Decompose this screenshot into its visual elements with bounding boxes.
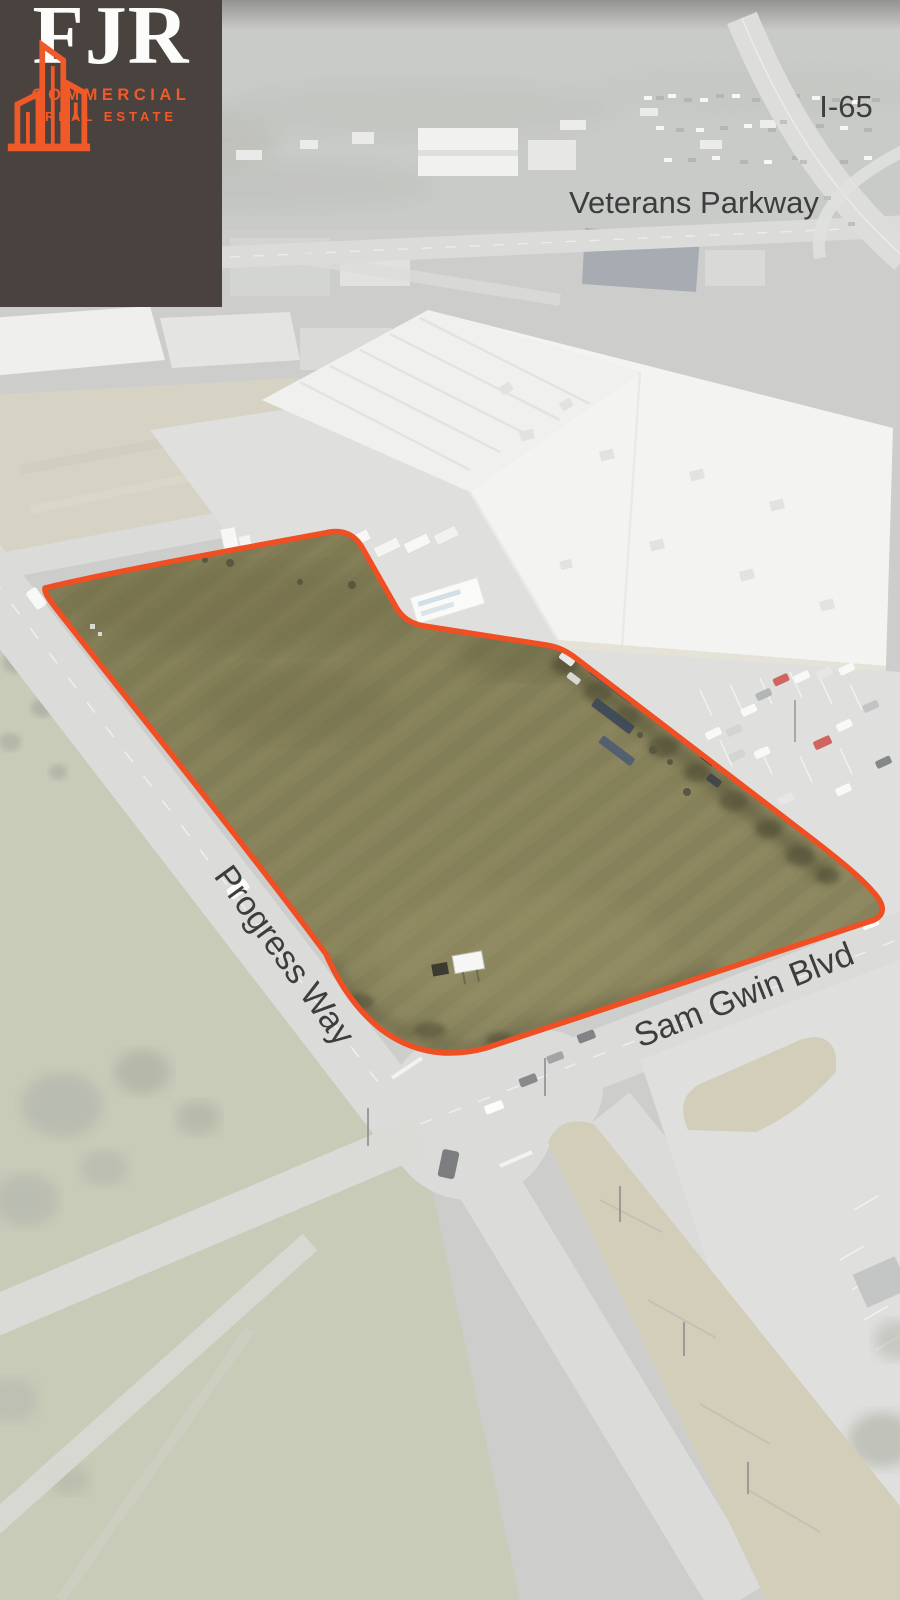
brand-logo: FJR COMMERCIAL REAL ESTATE: [0, 0, 222, 307]
label-i65: I-65: [819, 89, 872, 124]
aerial-listing-image: I-65 Veterans Parkway Progress Way Sam G…: [0, 0, 900, 1600]
label-veterans-parkway: Veterans Parkway: [569, 185, 819, 220]
building-icon: [0, 24, 96, 156]
